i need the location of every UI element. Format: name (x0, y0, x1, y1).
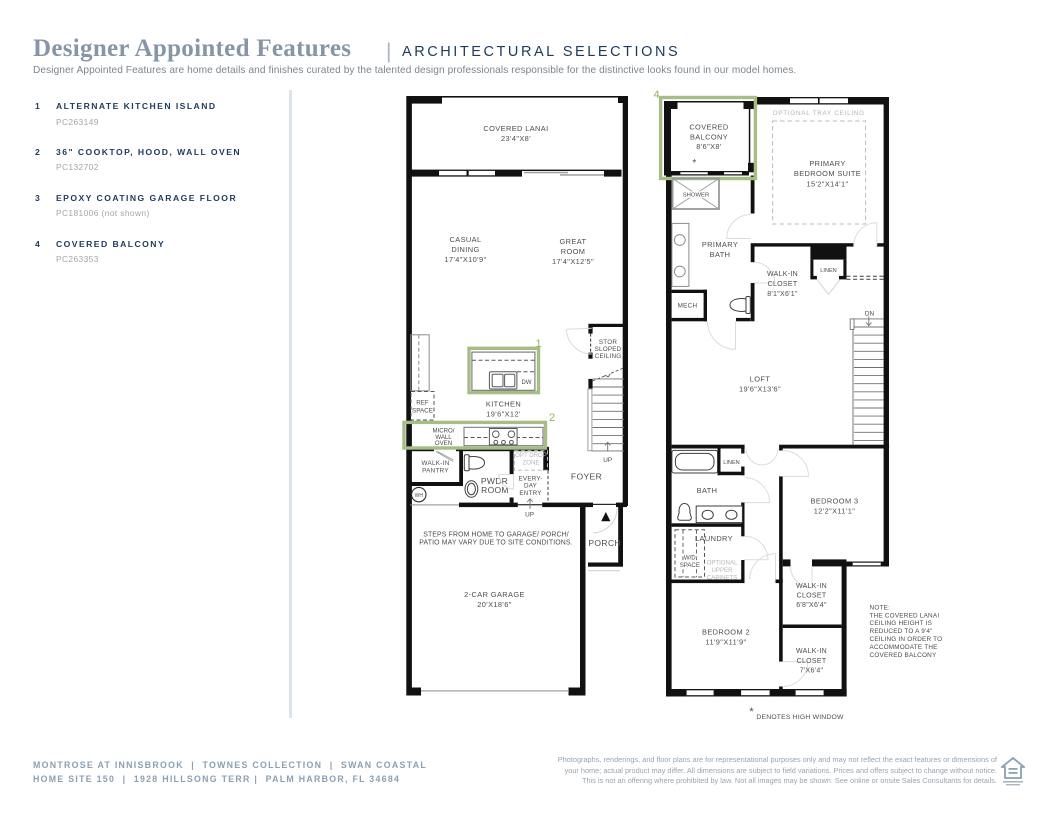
svg-text:COVERED BALCONY: COVERED BALCONY (870, 652, 937, 659)
svg-text:W/D: W/D (684, 555, 696, 562)
svg-text:WH: WH (415, 493, 424, 499)
svg-text:8'6"X8': 8'6"X8' (696, 142, 722, 151)
svg-text:PATIO MAY VARY DUE TO SITE CON: PATIO MAY VARY DUE TO SITE CONDITIONS. (419, 540, 573, 547)
svg-text:CLOSET: CLOSET (797, 658, 827, 665)
svg-text:19'6"X12': 19'6"X12' (486, 410, 521, 419)
svg-text:DW: DW (522, 380, 532, 386)
svg-text:SHOWER: SHOWER (683, 192, 710, 198)
svg-text:SPACE: SPACE (412, 408, 433, 415)
svg-text:ACCOMMODATE THE: ACCOMMODATE THE (870, 644, 938, 651)
svg-text:PANTRY: PANTRY (422, 467, 449, 474)
svg-text:OPT DROP: OPT DROP (515, 452, 547, 459)
svg-text:GREAT: GREAT (560, 237, 587, 246)
svg-text:19'6"X13'6": 19'6"X13'6" (739, 385, 781, 394)
svg-text:SLOPED: SLOPED (595, 346, 622, 353)
svg-text:2: 2 (549, 412, 555, 424)
svg-text:DENOTES HIGH WINDOW: DENOTES HIGH WINDOW (756, 714, 844, 721)
svg-text:2-CAR GARAGE: 2-CAR GARAGE (464, 590, 525, 599)
svg-text:12'2"X11'1": 12'2"X11'1" (814, 506, 856, 515)
svg-text:11'9"X11'9": 11'9"X11'9" (706, 638, 747, 647)
svg-text:4: 4 (653, 89, 659, 101)
svg-text:BEDROOM 2: BEDROOM 2 (702, 628, 750, 637)
svg-text:8'1"X6'1": 8'1"X6'1" (767, 291, 798, 298)
svg-text:WALK-IN: WALK-IN (421, 460, 449, 467)
svg-text:ZONE: ZONE (523, 460, 540, 467)
svg-text:LINEN: LINEN (723, 460, 739, 466)
svg-text:OVEN: OVEN (435, 440, 452, 447)
svg-text:CASUAL: CASUAL (450, 235, 482, 244)
svg-text:COVERED LANAI: COVERED LANAI (483, 124, 548, 133)
svg-text:PORCH: PORCH (588, 538, 621, 548)
svg-text:UPPER: UPPER (712, 567, 734, 574)
svg-text:6'8"X6'4": 6'8"X6'4" (796, 602, 827, 609)
svg-text:CEILING IN ORDER TO: CEILING IN ORDER TO (870, 636, 943, 643)
svg-text:CLOSET: CLOSET (768, 281, 798, 288)
svg-text:SPACE: SPACE (680, 562, 700, 569)
svg-text:17'4"X10'9": 17'4"X10'9" (444, 255, 486, 264)
svg-text:REF: REF (416, 400, 429, 407)
svg-text:*: * (692, 158, 696, 169)
svg-text:UP: UP (603, 457, 612, 464)
svg-text:BEDROOM SUITE: BEDROOM SUITE (794, 169, 861, 178)
svg-text:BALCONY: BALCONY (690, 133, 728, 142)
svg-text:7'X6'4": 7'X6'4" (800, 668, 824, 675)
svg-text:23'4"X8': 23'4"X8' (501, 134, 531, 143)
svg-text:DN: DN (865, 311, 875, 318)
svg-text:FOYER: FOYER (571, 472, 602, 482)
svg-text:PRIMARY: PRIMARY (702, 240, 738, 249)
svg-text:CEILING HEIGHT IS: CEILING HEIGHT IS (870, 620, 933, 627)
svg-text:WALK-IN: WALK-IN (767, 271, 798, 278)
svg-text:MECH: MECH (678, 303, 698, 310)
svg-text:COVERED: COVERED (689, 123, 728, 132)
svg-text:WALK-IN: WALK-IN (796, 648, 827, 655)
svg-text:BATH: BATH (710, 250, 731, 259)
svg-text:BEDROOM 3: BEDROOM 3 (811, 496, 859, 505)
svg-text:THE COVERED LANAI: THE COVERED LANAI (870, 612, 940, 619)
svg-text:EVERY-: EVERY- (519, 475, 543, 482)
svg-text:PRIMARY: PRIMARY (809, 159, 845, 168)
svg-text:1: 1 (535, 338, 541, 350)
svg-text:NOTE:: NOTE: (870, 604, 891, 611)
svg-text:ROOM: ROOM (561, 247, 586, 256)
svg-text:STOR: STOR (599, 339, 617, 346)
svg-text:DAY: DAY (524, 483, 538, 490)
svg-text:17'4"X12'5": 17'4"X12'5" (552, 257, 594, 266)
svg-text:WALK-IN: WALK-IN (796, 583, 827, 590)
svg-text:ENTRY: ENTRY (519, 490, 542, 497)
svg-text:LOFT: LOFT (750, 375, 771, 384)
svg-text:OPTIONAL TRAY CEILING: OPTIONAL TRAY CEILING (773, 110, 865, 117)
svg-text:LAUNDRY: LAUNDRY (695, 534, 733, 543)
svg-text:STEPS FROM HOME TO GARAGE/ POR: STEPS FROM HOME TO GARAGE/ PORCH/ (423, 532, 569, 539)
svg-text:LINEN: LINEN (820, 268, 836, 274)
svg-text:KITCHEN: KITCHEN (486, 400, 521, 409)
svg-text:CABINETS: CABINETS (707, 575, 737, 582)
svg-text:15'2"X14'1": 15'2"X14'1" (806, 179, 848, 188)
svg-text:REDUCED TO A 9'4": REDUCED TO A 9'4" (870, 628, 933, 635)
svg-text:BATH: BATH (697, 486, 718, 495)
svg-text:CLOSET: CLOSET (797, 592, 827, 599)
svg-text:UP: UP (525, 512, 534, 519)
svg-text:DINING: DINING (451, 245, 479, 254)
svg-text:CEILING: CEILING (595, 353, 622, 360)
svg-text:20'X18'6": 20'X18'6" (477, 600, 512, 609)
svg-text:*: * (749, 706, 754, 718)
svg-text:OPTIONAL: OPTIONAL (707, 560, 738, 567)
